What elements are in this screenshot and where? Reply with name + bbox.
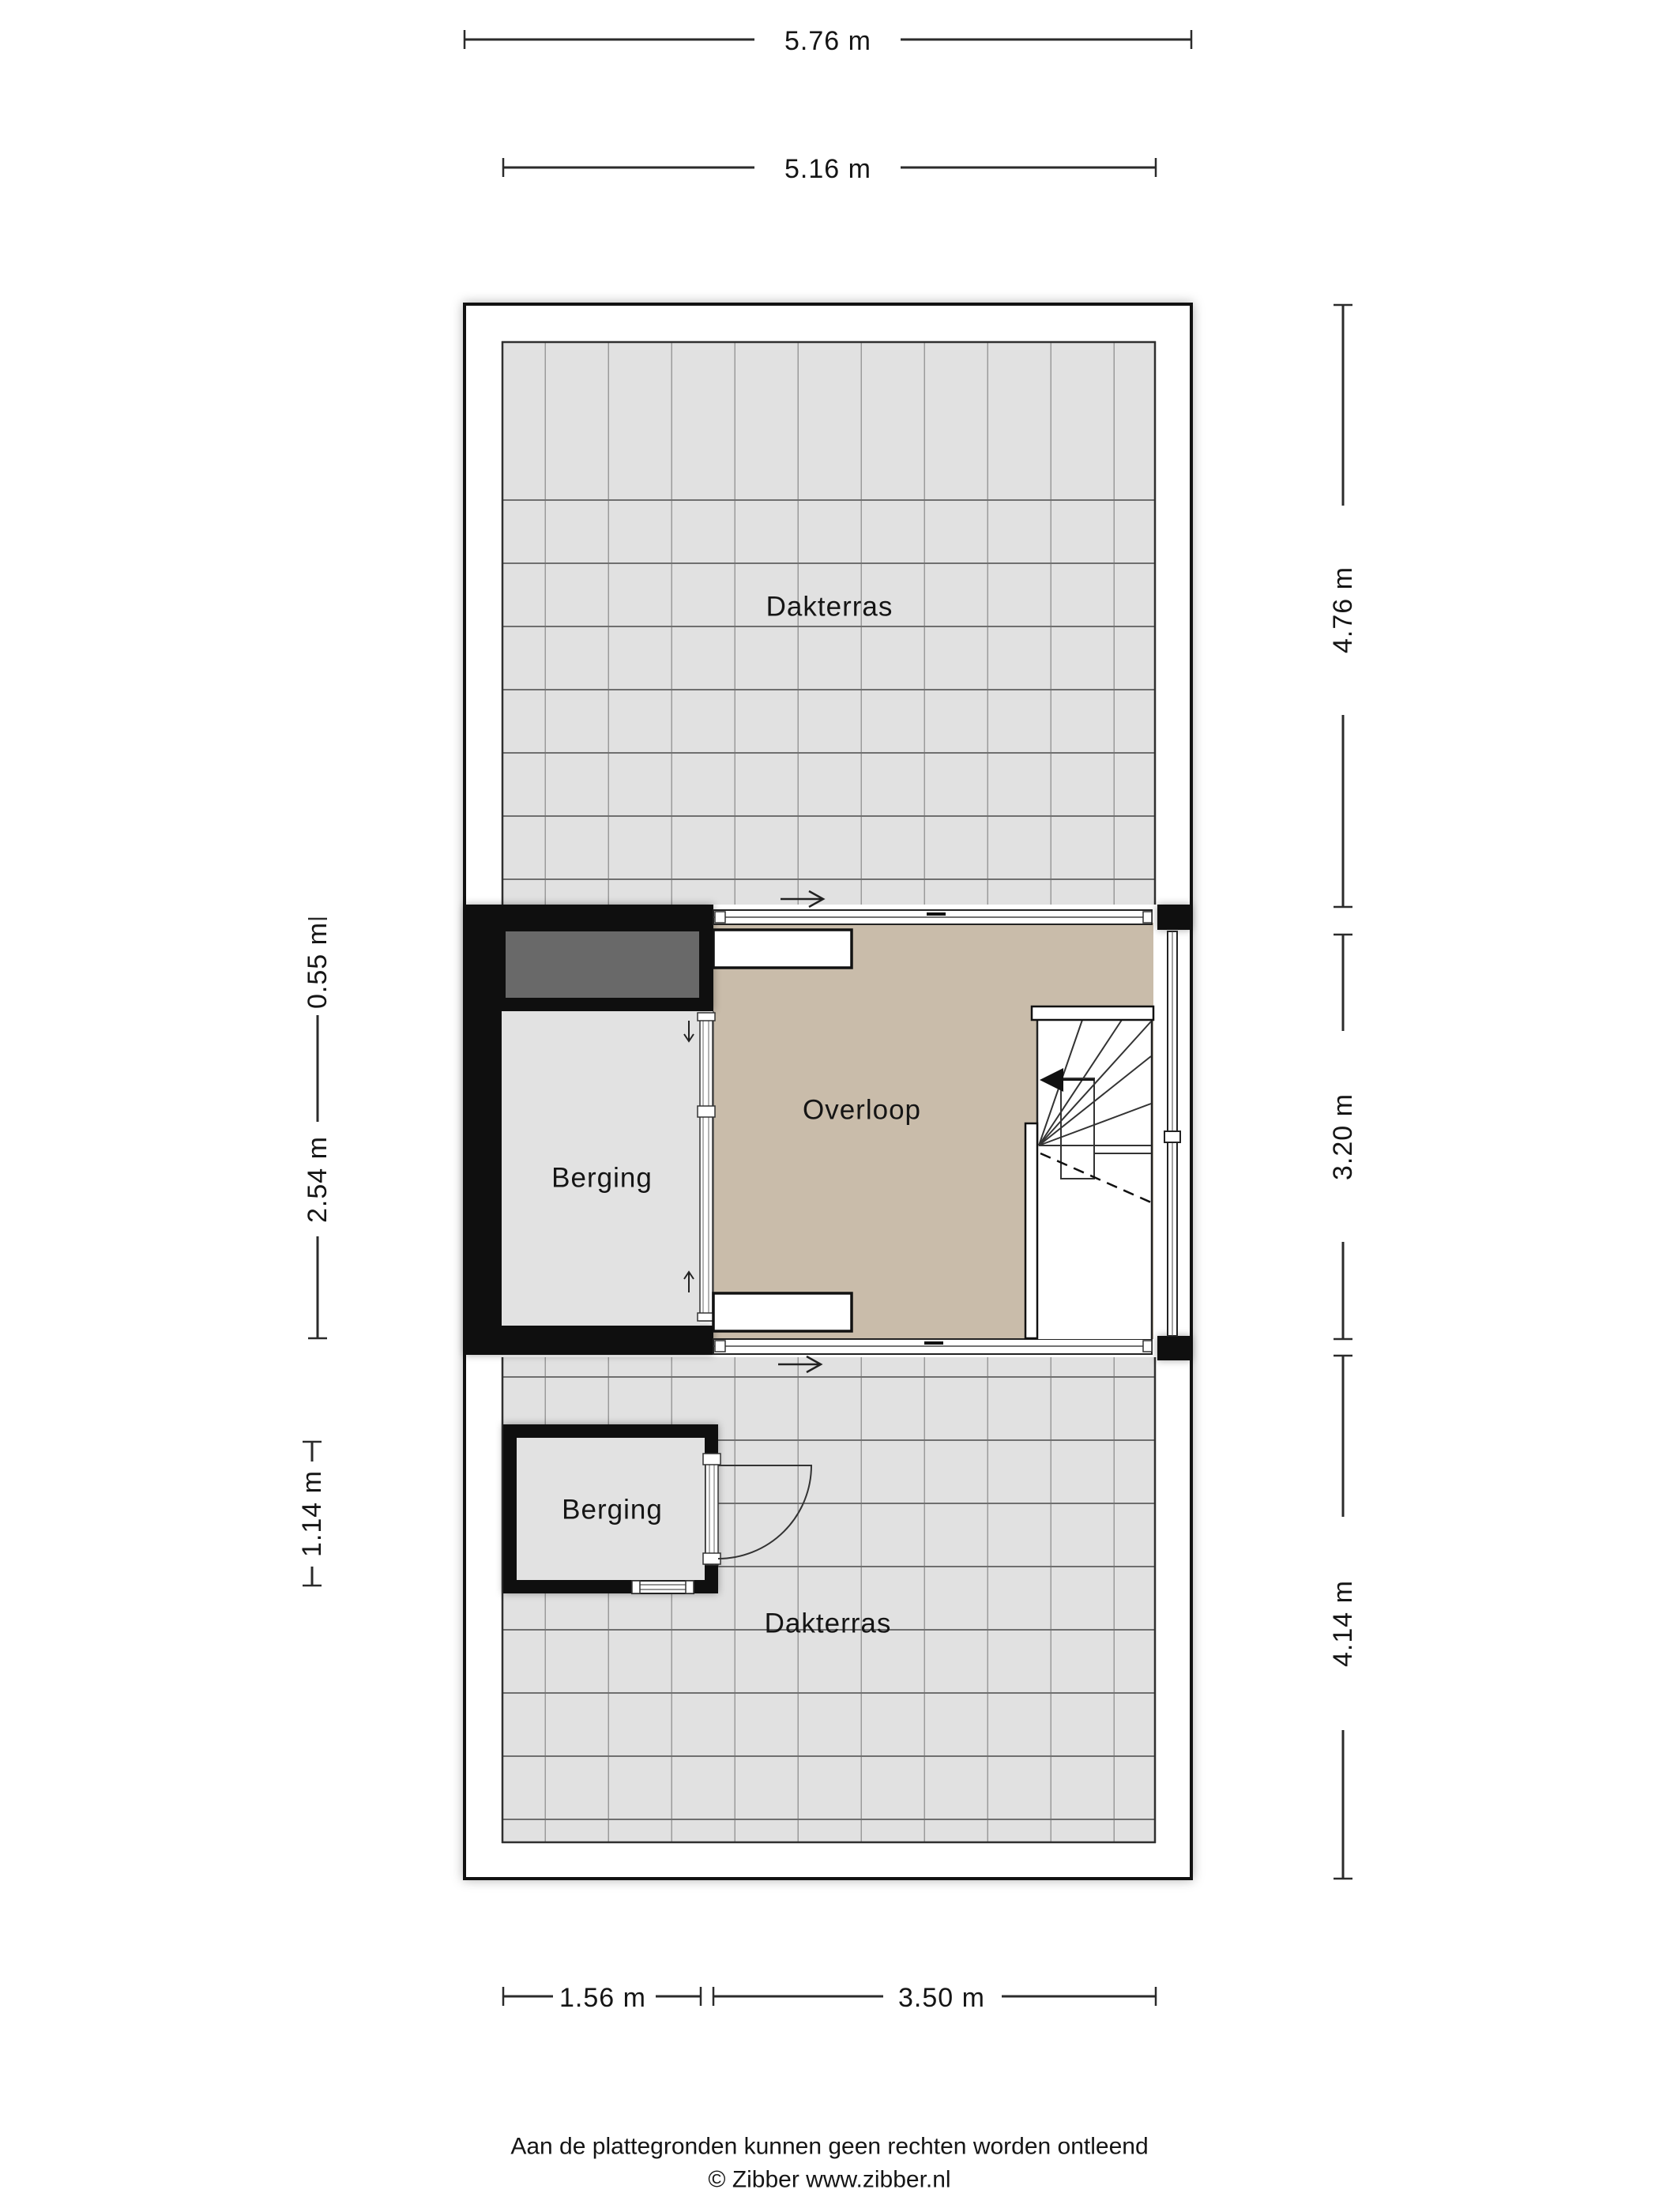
dimension-top-inner: 5.16 m bbox=[503, 154, 1156, 184]
stairs bbox=[1025, 1006, 1153, 1339]
room-label-dakterras-bottom: Dakterras bbox=[765, 1608, 892, 1639]
berging-middle-door bbox=[698, 1013, 715, 1321]
floorplan-page: 5.76 m 5.16 m 4.76 m 3.20 m 4.14 m 0.55 … bbox=[0, 0, 1659, 2212]
dakterras-top-floor bbox=[502, 341, 1156, 905]
window-band-top bbox=[713, 910, 1152, 924]
dim-label-top-outer: 5.76 m bbox=[784, 26, 871, 56]
berging-bottom-window bbox=[632, 1581, 694, 1593]
room-label-berging-bottom: Berging bbox=[562, 1495, 663, 1525]
dim-label-bottom-left: 1.56 m bbox=[559, 1983, 646, 2013]
dim-label-left-middle: 2.54 m bbox=[303, 1136, 333, 1223]
window-band-bottom bbox=[713, 1339, 1152, 1354]
room-label-overloop: Overloop bbox=[803, 1095, 921, 1126]
dimension-left-bottom: 1.14 m bbox=[297, 1442, 327, 1586]
dim-label-right-middle: 3.20 m bbox=[1328, 1093, 1358, 1180]
wall-pillar-bottom-right bbox=[1157, 1336, 1191, 1360]
dim-label-left-top: 0.55 m bbox=[303, 922, 333, 1009]
dimension-right-top: 4.76 m bbox=[1328, 305, 1358, 907]
room-label-berging-middle: Berging bbox=[551, 1163, 653, 1194]
dimension-left-top: 0.55 m bbox=[303, 919, 333, 1009]
door-leaf-top bbox=[713, 930, 852, 968]
room-label-dakterras-top: Dakterras bbox=[766, 592, 893, 623]
dim-label-top-inner: 5.16 m bbox=[784, 154, 871, 184]
dimension-right-bottom: 4.14 m bbox=[1328, 1356, 1358, 1879]
dimension-top-outer: 5.76 m bbox=[465, 26, 1191, 56]
footer-credit: © Zibber www.zibber.nl bbox=[708, 2167, 950, 2193]
roof-element bbox=[504, 930, 701, 999]
dim-label-left-bottom: 1.14 m bbox=[297, 1470, 327, 1557]
footer-disclaimer: Aan de plattegronden kunnen geen rechten… bbox=[510, 2134, 1148, 2160]
dim-label-right-top: 4.76 m bbox=[1328, 566, 1358, 653]
dimension-bottom-left: 1.56 m bbox=[503, 1983, 701, 2013]
floorplan-drawing: 5.76 m 5.16 m 4.76 m 3.20 m 4.14 m 0.55 … bbox=[0, 0, 1659, 2212]
wall-bottom-left bbox=[465, 1326, 713, 1355]
dimension-left-middle: 2.54 m bbox=[303, 1015, 333, 1338]
dim-label-right-bottom: 4.14 m bbox=[1328, 1580, 1358, 1667]
dimension-right-middle: 3.20 m bbox=[1328, 935, 1358, 1339]
dimension-bottom-right: 3.50 m bbox=[713, 1983, 1156, 2013]
door-leaf-bottom bbox=[713, 1293, 852, 1331]
wall-pillar-top-right bbox=[1157, 905, 1191, 930]
window-right bbox=[1164, 931, 1180, 1336]
wall-left bbox=[465, 1011, 502, 1355]
dim-label-bottom-right: 3.50 m bbox=[898, 1983, 985, 2013]
